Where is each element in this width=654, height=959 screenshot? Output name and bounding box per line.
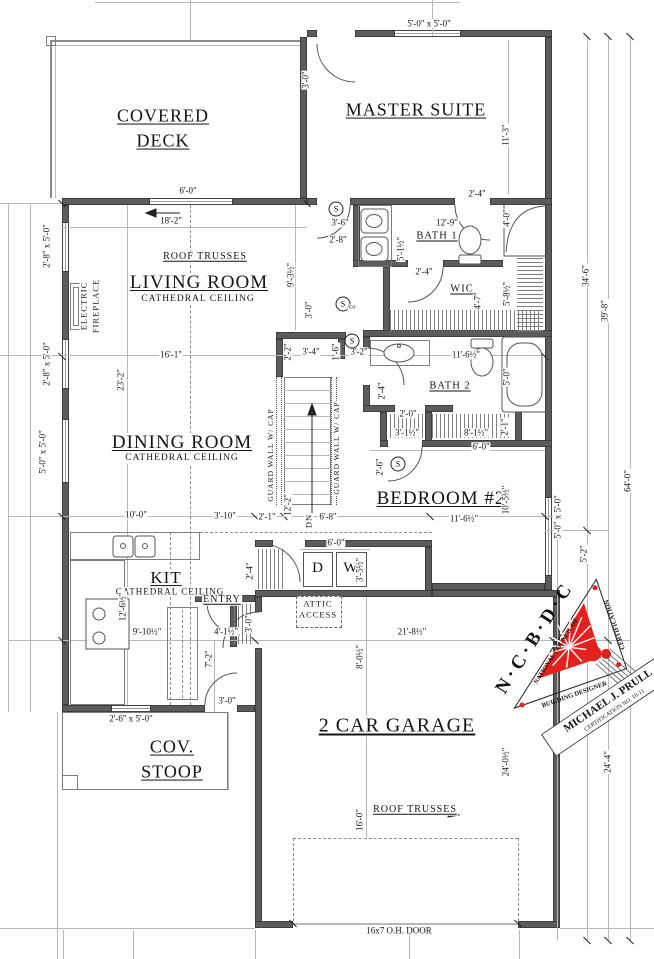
room-label: DN: [305, 513, 314, 529]
dimension-label: 8'-1½": [463, 428, 489, 437]
dimension-label: 2'-8": [328, 235, 347, 244]
dimension-label: 2'-6": [375, 457, 384, 476]
dimension-label: 3'-0": [217, 696, 236, 705]
fixtures-layer: N·C·B·D·C NATIONAL COUNCIL OF BUILDING D…: [0, 0, 654, 959]
bath1-toilet: [459, 226, 481, 264]
room-label: WIC: [449, 283, 474, 294]
dimension-label: 34'-6": [581, 264, 590, 288]
dimension-label: 24'-0½": [501, 747, 510, 778]
dimension-label: 12'-2": [283, 493, 292, 517]
dimension-label: 3'-0": [304, 300, 313, 319]
room-label: ELECTRIC: [80, 281, 89, 332]
dimension-label: 3'-5½": [355, 557, 364, 583]
dimension-label: 4'-7": [473, 291, 482, 310]
dimension-label: 5'-0" x 5'-0": [553, 494, 562, 540]
smoke-detector-symbol: S: [391, 457, 406, 472]
room-label: CATHEDRAL CEILING: [140, 295, 255, 305]
dimension-label: 9'-3½": [286, 262, 295, 288]
room-label: FIREPLACE: [92, 278, 101, 334]
dimension-label: 39'-8": [600, 299, 609, 323]
kitchen-sink: [113, 536, 155, 557]
dimension-label: 5'-8½": [502, 281, 511, 307]
room-label: ENTRY: [202, 595, 242, 606]
dimension-label: 16x7 O.H. DOOR: [365, 926, 433, 935]
stamp-line3: CERTIFICATION: [603, 598, 627, 650]
dimension-label: 12'-9": [435, 218, 459, 227]
dimension-label: 2'-4": [245, 561, 254, 580]
stamp-designer-name: MICHAEL J. PRULL: [561, 667, 654, 735]
dimension-label: 6'-0": [178, 186, 197, 195]
dimension-label: 3'-2": [349, 347, 368, 356]
room-label: 2 CAR GARAGE: [318, 716, 476, 737]
dimension-label: 12'-6½": [118, 592, 127, 623]
dimension-label: 2'-8" x 5'-0": [42, 341, 51, 387]
dimension-label: 11'-6½": [451, 350, 481, 359]
dimension-label: 2'-6" x 5'-0": [108, 714, 154, 723]
room-label: COV.: [149, 738, 195, 757]
dimension-label: 11'-3": [501, 123, 510, 146]
dimension-label: 2'-1": [257, 512, 276, 521]
floor-plan: N·C·B·D·C NATIONAL COUNCIL OF BUILDING D…: [0, 0, 654, 959]
dimension-label: 3'-10": [213, 511, 237, 520]
room-label: STOOP: [140, 763, 204, 782]
smoke-detector-symbol: S: [345, 334, 360, 349]
smoke-detector-symbol: S: [329, 202, 344, 217]
room-label: D: [311, 561, 325, 577]
dimension-label: 64'-0": [623, 469, 632, 493]
dimension-label: 4'-0": [502, 208, 511, 227]
dimension-label: 2'-0": [398, 409, 417, 418]
dimension-label: 16'-0": [355, 808, 364, 832]
smoke-co-label: /co: [348, 305, 356, 312]
dimension-label: 18'-2": [159, 216, 183, 225]
room-label: ATTIC: [302, 600, 333, 609]
room-label: CATHEDRAL CEILING: [124, 454, 239, 464]
bath1-sinks: [361, 209, 388, 261]
dimension-label: 23'-2": [116, 368, 125, 392]
dimension-label: 7'-2": [204, 649, 213, 668]
room-label: GUARD WALL W/ CAP: [333, 400, 341, 495]
dimension-label: 24'-4": [603, 750, 612, 774]
room-label: GUARD WALL W/ CAP: [267, 407, 275, 502]
room-label: DECK: [136, 132, 191, 151]
room-label: ROOF TRUSSES: [372, 805, 458, 816]
room-label: MASTER SUITE: [345, 101, 488, 120]
door-arcs: [205, 44, 490, 705]
room-label: COVERED: [116, 107, 210, 126]
certification-stamp: N·C·B·D·C NATIONAL COUNCIL OF BUILDING D…: [464, 554, 654, 767]
dimension-label: 21'-8½": [397, 627, 428, 636]
dimension-label: 6'-0": [326, 538, 345, 547]
room-label: BATH 2: [428, 380, 471, 391]
dimension-label: 2'-8" x 5'-0": [42, 223, 51, 269]
dimension-label: 3'-0": [244, 614, 253, 633]
smoke-detector-symbol: S/co: [336, 297, 351, 312]
room-label: ROOF TRUSSES: [162, 252, 248, 263]
dimension-label: 3'-6": [330, 218, 349, 227]
dimension-label: 5'-0" x 5'-0": [38, 429, 47, 475]
dimension-label: 16'-1": [159, 350, 183, 359]
dimension-label: 9'-10½": [132, 627, 163, 636]
room-label: KIT: [149, 569, 182, 587]
dimension-label: 2'-4": [467, 189, 486, 198]
room-label: DINING ROOM: [111, 433, 253, 453]
room-label: ACCESS: [298, 611, 338, 620]
dimension-label: 5'-2": [579, 544, 588, 563]
dimension-label: 1'-6": [331, 342, 340, 361]
dn-arrow: [308, 404, 316, 516]
room-label: BEDROOM #2: [376, 489, 507, 509]
dimension-label: 2'-4": [414, 267, 433, 276]
dimension-label: 6'-0": [471, 442, 490, 451]
dimension-label: 5'-0": [502, 367, 511, 386]
dimension-label: 3'-4": [301, 347, 320, 356]
dimension-label: 8'-0½": [355, 644, 364, 670]
dimension-label: 10'-0": [124, 510, 148, 519]
dimension-label: 2'-4": [377, 381, 386, 400]
dimension-label: 5'-1½": [396, 236, 405, 262]
door-arc: [262, 544, 300, 582]
dimension-label: 11'-6½": [449, 514, 479, 523]
dimension-label: 3'-1½": [394, 428, 420, 437]
dimension-label: 10'-5½": [501, 485, 510, 516]
dimension-label: 2'-1": [500, 417, 509, 436]
dimension-label: 5'-0" x 5'-0": [406, 19, 452, 28]
dimension-label: 4'-1½": [213, 627, 239, 636]
room-label: BATH 1: [415, 230, 458, 241]
room-label: LIVING ROOM: [129, 273, 269, 293]
dimension-label: 2'-2": [283, 342, 292, 361]
bath2-sink: [384, 344, 414, 362]
dimension-label: 3'-0": [301, 70, 310, 89]
dimension-label: 6'-8": [318, 512, 337, 521]
door-arc: [317, 44, 355, 82]
